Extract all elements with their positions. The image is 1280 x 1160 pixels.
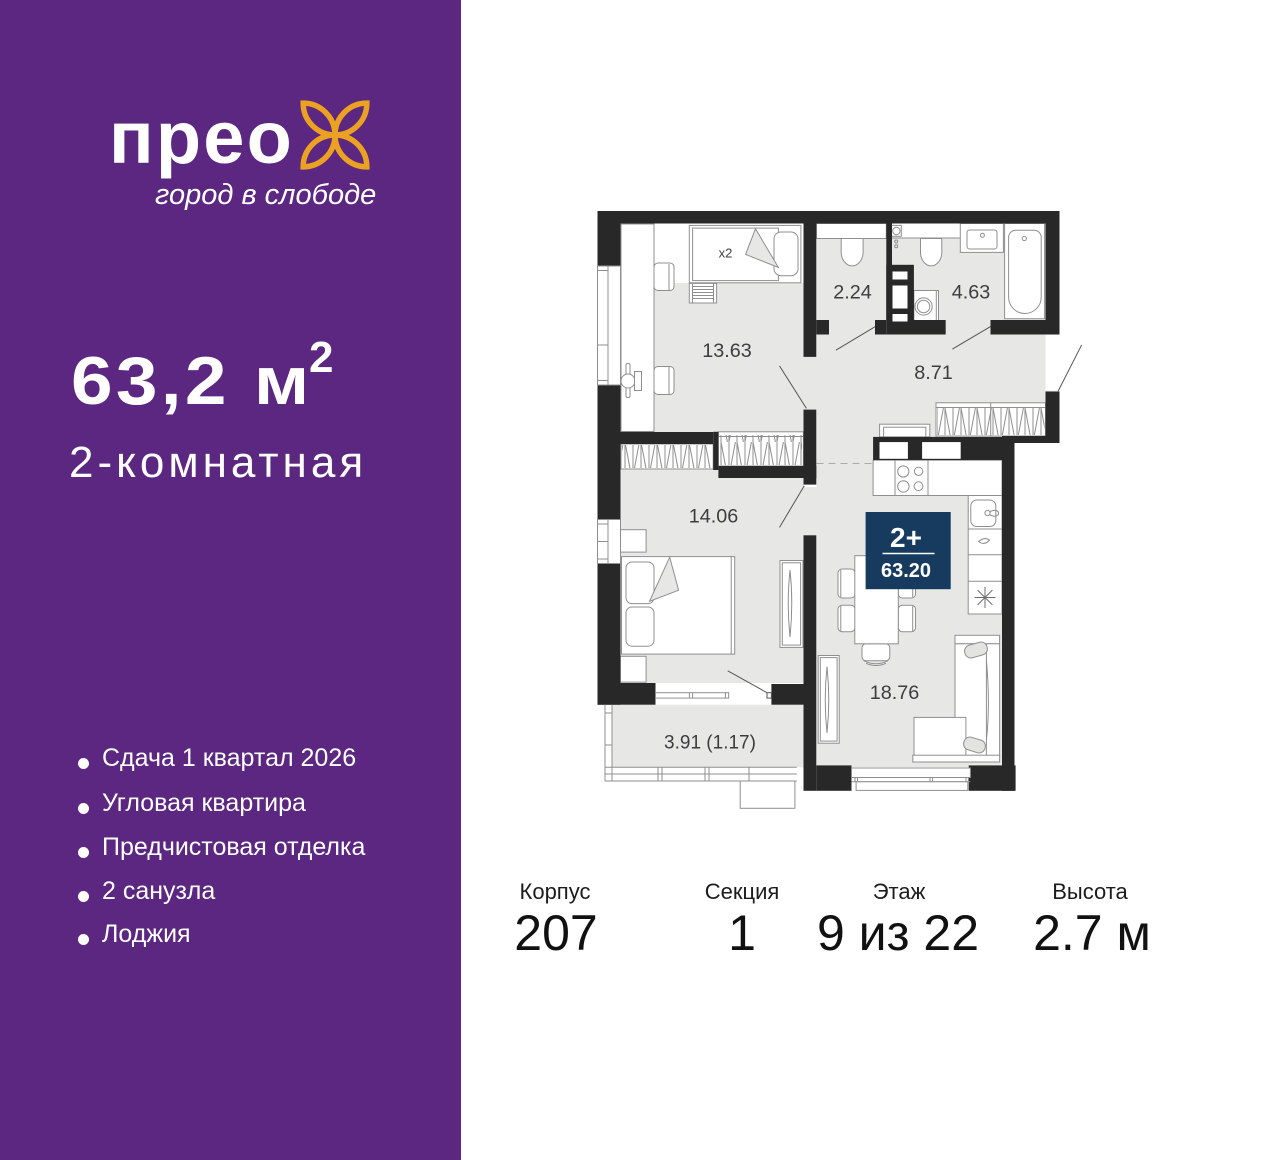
svg-text:18.76: 18.76 [870, 682, 920, 704]
svg-text:63.20: 63.20 [881, 560, 931, 582]
svg-text:3.91 (1.17): 3.91 (1.17) [664, 733, 756, 754]
svg-text:2+: 2+ [890, 522, 922, 553]
svg-text:4.63: 4.63 [952, 282, 991, 304]
svg-text:2.24: 2.24 [833, 282, 872, 304]
svg-text:14.06: 14.06 [689, 506, 739, 528]
svg-text:13.63: 13.63 [702, 340, 752, 362]
svg-text:8.71: 8.71 [914, 362, 953, 384]
svg-text:x2: x2 [719, 246, 733, 261]
